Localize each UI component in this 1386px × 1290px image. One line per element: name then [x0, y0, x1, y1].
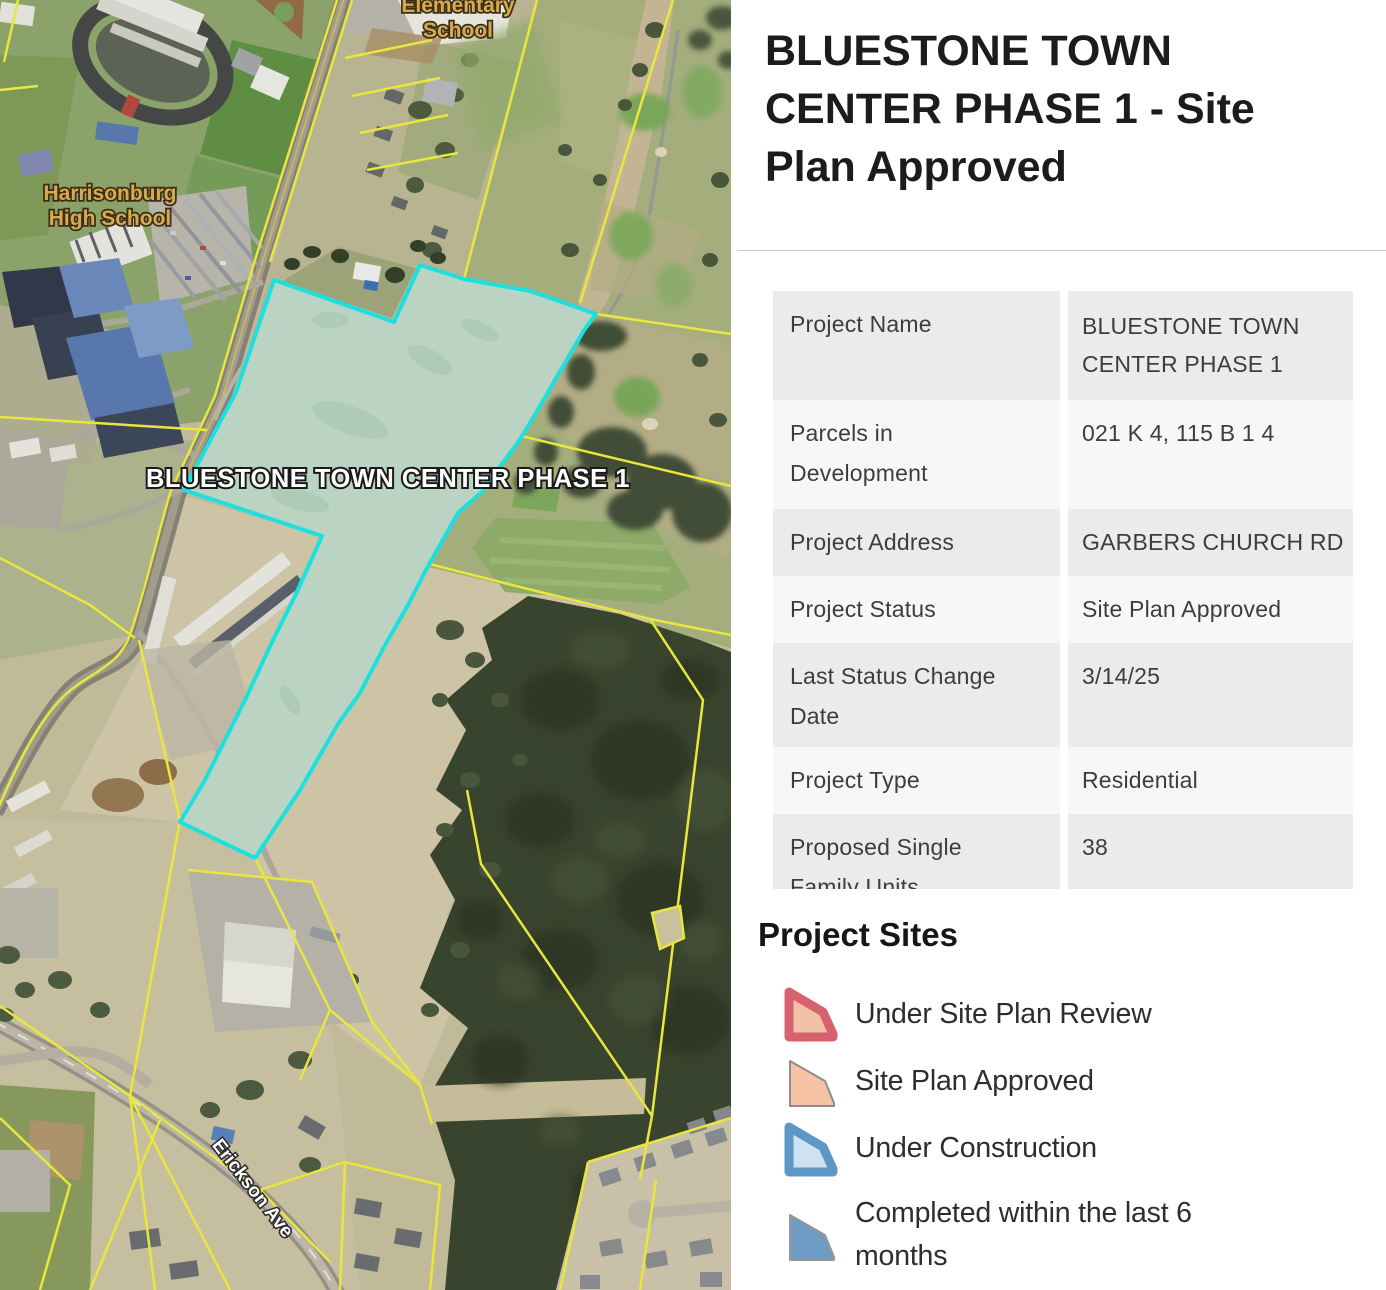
- svg-text:BLUESTONE TOWN CENTER PHASE 1: BLUESTONE TOWN CENTER PHASE 1: [146, 465, 630, 493]
- svg-text:Harrisonburg: Harrisonburg: [43, 182, 176, 205]
- svg-text:Elementary: Elementary: [401, 0, 515, 17]
- svg-text:High School: High School: [49, 207, 172, 230]
- svg-text:School: School: [423, 19, 493, 42]
